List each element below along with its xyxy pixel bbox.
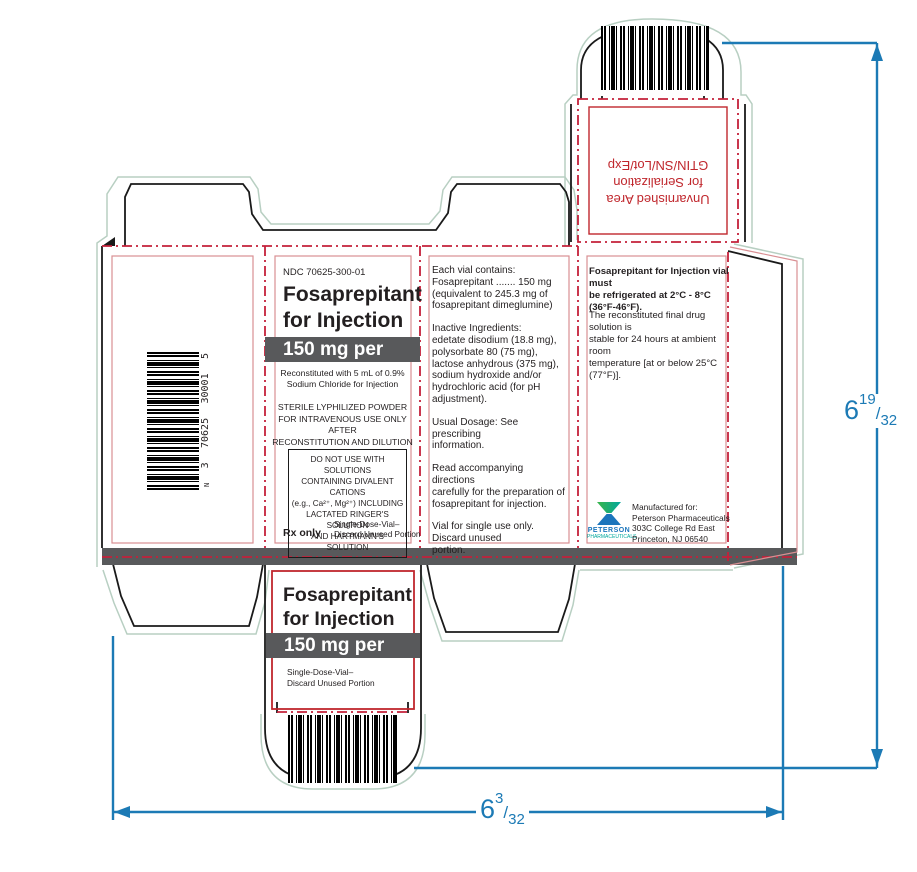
barcode-digit-group: 3 (200, 462, 211, 468)
sterile-statement: STERILE LYPHILIZED POWDER FOR INTRAVENOU… (265, 402, 420, 448)
preparation-directions: Read accompanying directions carefully f… (432, 463, 567, 510)
ndc-barcode: N 3 70625 30001 5 (147, 350, 219, 490)
height-whole: 6 (844, 395, 859, 425)
single-use-statement: Vial for single use only. Discard unused… (432, 521, 567, 556)
strength-band: 150 mg per vial (265, 337, 420, 362)
width-dimension-label: 63/32 (476, 793, 529, 827)
usual-dosage: Usual Dosage: See prescribing informatio… (432, 417, 567, 452)
bottom-single-dose-statement: Single-Dose-Vial– Discard Unused Portion (287, 667, 375, 688)
rx-only: Rx only (283, 527, 321, 539)
height-numerator: 19 (859, 391, 876, 408)
product-title: Fosaprepitant for Injection (283, 282, 422, 334)
barcode-number: N 3 70625 30001 5 (199, 350, 211, 490)
barcode-prefix: N (203, 483, 211, 487)
vial-contents: Each vial contains: Fosaprepitant ......… (432, 265, 567, 312)
width-whole: 6 (480, 794, 495, 824)
logo-subtitle: PHARMACEUTICALS (587, 534, 631, 540)
logo-hourglass-bottom (597, 514, 621, 525)
top-tuck-barcode (601, 26, 709, 90)
refrigeration-statement: Fosaprepitant for Injection vial must be… (589, 266, 731, 314)
height-dimension-label: 619/32 (840, 394, 901, 428)
bottom-tuck-barcode (288, 715, 397, 783)
reconstitution-statement: Reconstituted with 5 mL of 0.9% Sodium C… (265, 368, 420, 390)
width-denominator: 32 (508, 811, 525, 828)
inactive-ingredients: Inactive Ingredients: edetate disodium (… (432, 323, 567, 406)
bottom-strength-band: 150 mg per vial (266, 633, 420, 658)
carton-dieline-page: N 3 70625 30001 5 Unvarnished Area for S… (0, 0, 917, 872)
height-denominator: 32 (880, 412, 897, 429)
logo-name: PETERSON (587, 527, 631, 534)
barcode-digit-group: 70625 (200, 418, 211, 448)
logo-hourglass-top (597, 502, 621, 513)
single-dose-statement: Single-Dose-Vial– Discard Unused Portion (334, 520, 420, 540)
peterson-logo: PETERSON PHARMACEUTICALS (587, 502, 631, 540)
width-numerator: 3 (495, 790, 503, 807)
divalent-cation-warning: DO NOT USE WITH SOLUTIONS CONTAINING DIV… (288, 449, 407, 558)
ingredients-panel: Each vial contains: Fosaprepitant ......… (432, 265, 567, 568)
stability-statement: The reconstituted final drug solution is… (589, 310, 731, 382)
manufacturer-address: Manufactured for: Peterson Pharmaceutica… (632, 502, 742, 544)
barcode-digit-group: 30001 (200, 373, 211, 403)
bottom-product-title: Fosaprepitant for Injection (283, 583, 412, 631)
barcode-digit-group: 5 (200, 353, 211, 359)
barcode-bars (147, 350, 199, 490)
ndc-number: NDC 70625-300-01 (283, 267, 365, 278)
serialization-area-text: Unvarnished Area for Serialization GTIN/… (589, 107, 727, 234)
